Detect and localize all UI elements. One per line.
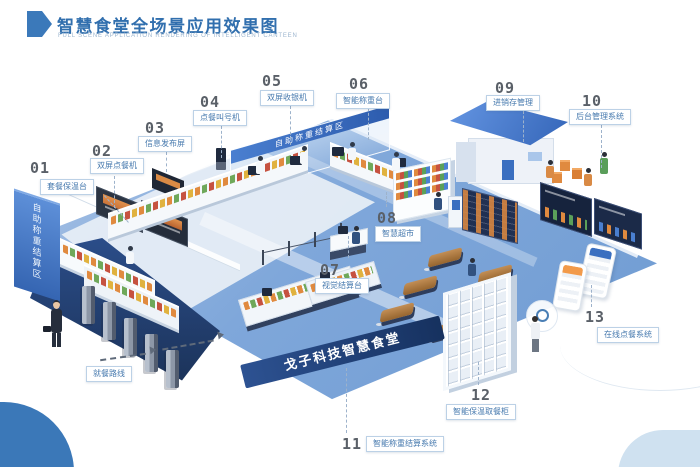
worker-figure	[584, 168, 592, 186]
scene-illustration: 戈子科技智慧食堂 自助称重结算区 自助称重结算区	[0, 0, 700, 467]
counter-pos-screen	[262, 288, 272, 296]
page-subtitle: FULL SCENE APPLICATION RENDERING OF INTE…	[58, 33, 298, 39]
callout-07-number: 07	[320, 261, 340, 279]
callout-06-label: 智能称重台	[336, 93, 390, 109]
callout-13-number: 13	[585, 308, 605, 326]
checkout-monitor	[338, 226, 348, 234]
visitor-suit-man	[46, 300, 68, 356]
callout-06-connector	[368, 108, 369, 140]
legs	[52, 333, 61, 347]
stool	[376, 323, 382, 326]
turnstile-gate	[103, 302, 116, 340]
callout-12-label: 智能保温取餐柜	[446, 404, 516, 420]
turnstile-gate	[82, 286, 95, 324]
pallet-box	[560, 160, 570, 171]
dashboard-text-line	[599, 206, 625, 216]
head	[53, 300, 60, 309]
body	[51, 309, 62, 333]
worker-figure	[546, 160, 554, 178]
callout-03-connector	[166, 152, 167, 172]
left-wall-text: 自助称重结算区	[31, 201, 44, 282]
callout-04-label: 点餐叫号机	[193, 110, 247, 126]
line-screen-2	[332, 147, 344, 156]
phone-screen	[557, 265, 584, 308]
callout-09-connector	[523, 111, 524, 142]
callout-07-connector	[348, 236, 349, 258]
callout-10-connector	[601, 125, 602, 168]
turnstile-gate	[124, 318, 137, 356]
callout-03-label: 信息发布屏	[138, 136, 192, 152]
staff-figure	[300, 146, 308, 164]
callout-06-number: 06	[349, 75, 369, 93]
callout-09-label: 进销存管理	[486, 95, 540, 111]
callout-11-label: 智能称重结算系统	[366, 436, 444, 452]
callout-02-label: 双屏点餐机	[90, 158, 144, 174]
staff-figure	[392, 152, 400, 170]
legs	[532, 339, 539, 352]
diner-figure	[468, 258, 476, 276]
staff-figure	[256, 156, 264, 174]
stool	[399, 296, 405, 299]
left-wall: 自助称重结算区	[14, 189, 60, 302]
callout-07-label: 视觉结算台	[315, 278, 369, 294]
supermarket-kiosk	[448, 196, 463, 228]
staff-figure	[348, 142, 356, 160]
queue-pole	[314, 232, 316, 247]
callout-13-connector	[591, 285, 592, 307]
dashboard-text-line	[545, 190, 575, 202]
callout-05-label: 双屏收银机	[260, 90, 314, 106]
callout-08-number: 08	[377, 209, 397, 227]
callout-13-label: 在线点餐系统	[597, 327, 659, 343]
pickup-locker-grid	[443, 272, 511, 391]
callout-08-connector	[386, 192, 387, 207]
warehouse-window	[528, 152, 542, 161]
decorative-curve	[560, 300, 700, 391]
callout-04-number: 04	[200, 93, 220, 111]
corner-decoration-bottom-right	[618, 430, 700, 467]
corner-decoration-bottom-left	[0, 402, 74, 467]
head	[532, 316, 538, 322]
stool	[424, 268, 430, 271]
warehouse-door	[502, 160, 514, 180]
callout-12-connector	[478, 362, 479, 385]
callout-04-connector	[221, 126, 222, 158]
callout-12-number: 12	[471, 386, 491, 404]
canteen-infographic: 智慧食堂全场景应用效果图 FULL SCENE APPLICATION REND…	[0, 0, 700, 467]
callout-05-number: 05	[262, 72, 282, 90]
callout-05-connector	[290, 106, 291, 145]
callout-11-number: 11	[342, 435, 362, 453]
callout-02-connector	[114, 176, 115, 208]
customer-figure	[352, 226, 360, 244]
customer-figure	[434, 192, 442, 210]
queue-pole	[262, 250, 264, 265]
callout-08-label: 智慧超市	[375, 226, 421, 242]
route-arrow-icon	[217, 331, 224, 340]
kiosk-screen	[452, 200, 460, 210]
pallet-box	[572, 168, 582, 179]
callout-10-number: 10	[582, 92, 602, 110]
staff-figure	[126, 246, 134, 264]
route-arrow-icon	[149, 346, 156, 355]
callout-03-number: 03	[145, 119, 165, 137]
phone-user-figure	[528, 316, 542, 362]
route-label: 就餐路线	[86, 366, 132, 382]
warehouse-wall-left	[456, 142, 476, 182]
callout-01-number: 01	[30, 159, 50, 177]
turnstile-gate	[166, 350, 179, 388]
queue-pole	[288, 241, 290, 256]
callout-01-label: 套餐保温台	[40, 179, 94, 195]
briefcase	[43, 326, 51, 332]
callout-10-label: 后台管理系统	[569, 109, 631, 125]
body	[531, 323, 540, 339]
callout-11-connector	[346, 368, 347, 433]
